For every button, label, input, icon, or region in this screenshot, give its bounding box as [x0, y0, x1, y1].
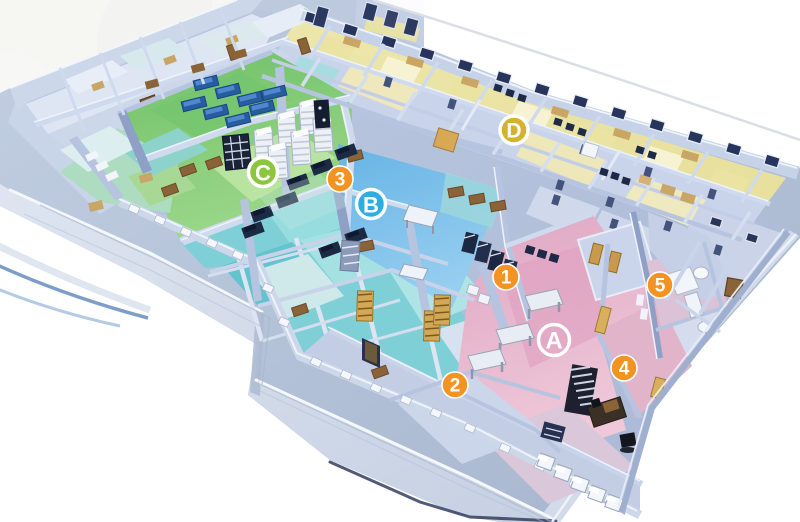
svg-text:5: 5 [655, 276, 666, 297]
svg-text:C: C [255, 161, 271, 186]
svg-text:2: 2 [450, 376, 461, 397]
svg-text:3: 3 [335, 170, 346, 191]
svg-text:1: 1 [501, 268, 512, 289]
svg-text:A: A [545, 328, 562, 355]
svg-text:D: D [506, 120, 521, 143]
svg-text:4: 4 [619, 359, 630, 380]
svg-text:B: B [363, 193, 379, 218]
